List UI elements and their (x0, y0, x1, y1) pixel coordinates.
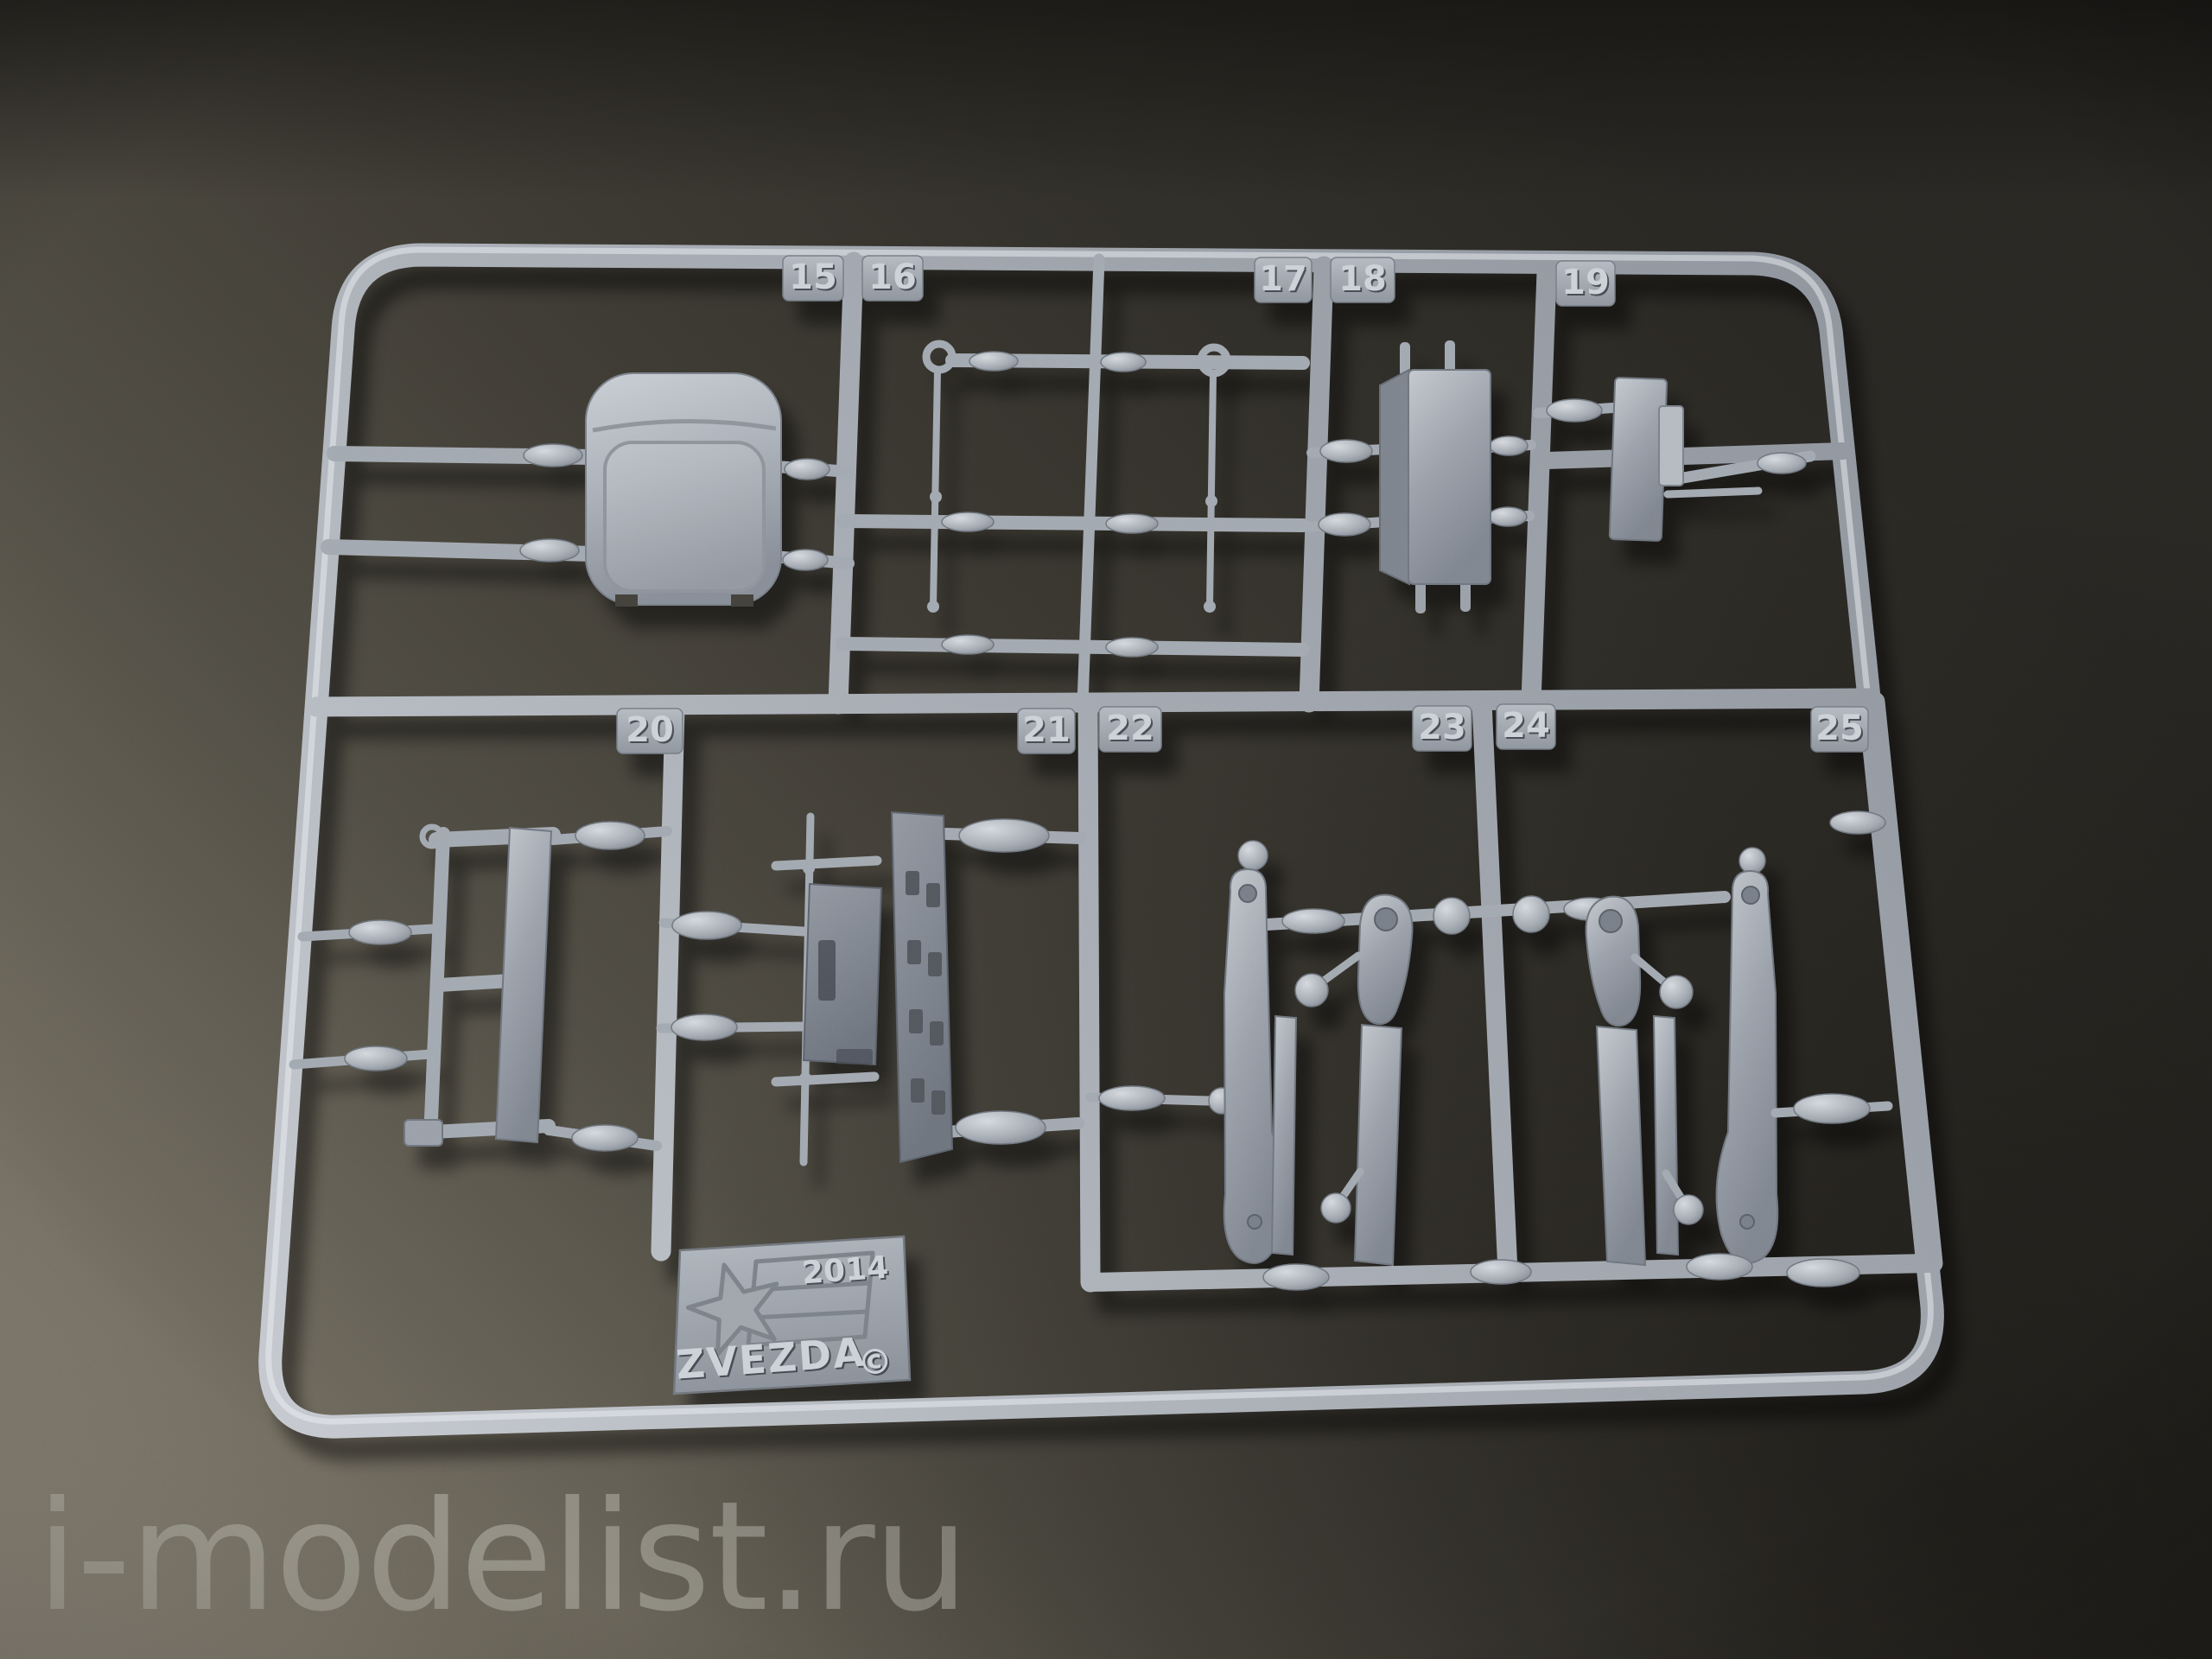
sprue-photo: 2014 2014 ZVEZDA ZVEZDA © © 15 15 (0, 0, 2212, 1659)
vignette (0, 0, 2212, 1659)
